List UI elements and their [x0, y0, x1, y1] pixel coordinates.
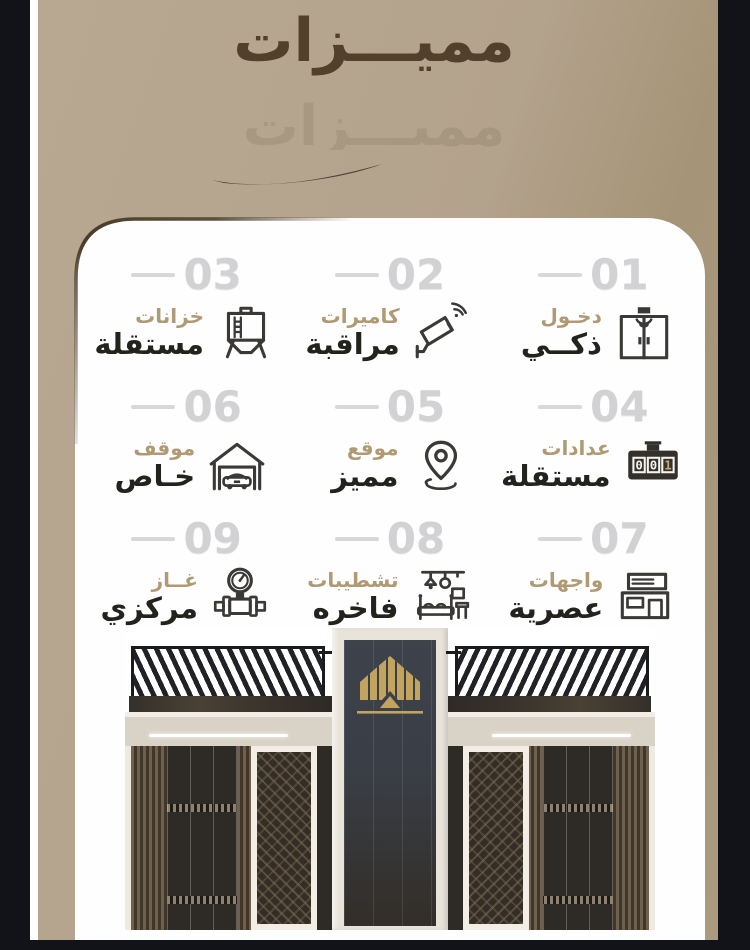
gas-meter-icon — [207, 564, 273, 630]
feature-number-row: 02 — [290, 252, 489, 298]
feature-number: 05 — [387, 386, 445, 428]
number-dash — [538, 537, 582, 541]
facade — [125, 746, 332, 930]
page-title-ghost: مميـــزات — [30, 94, 718, 150]
feature-item-location: 05 موقع مميز — [290, 384, 489, 502]
feature-number-row: 01 — [494, 252, 693, 298]
facade — [448, 746, 655, 930]
wood-slats — [131, 746, 167, 930]
feature-item-parking: 06 — [87, 384, 286, 502]
roof-railing — [446, 651, 461, 654]
feature-label-top: تشطيبات — [307, 569, 399, 592]
feature-window — [463, 746, 529, 930]
meter-digit: 0 — [635, 459, 642, 473]
feature-item-tanks: 03 — [87, 252, 286, 370]
feature-item-gas: 09 — [87, 516, 286, 634]
led-strip — [492, 734, 631, 737]
feature-number-row: 06 — [87, 384, 286, 430]
feature-label-bottom: مراقبة — [305, 329, 399, 361]
feature-label-top: واجهات — [508, 569, 603, 592]
number-dash — [131, 405, 175, 409]
feature-label-bottom: فاخره — [307, 593, 399, 625]
meter-digit: 1 — [664, 459, 671, 473]
feature-item-meters: 04 0 0 — [494, 384, 693, 502]
glass-curtain-wall — [167, 746, 237, 930]
feature-label-top: دخـول — [510, 305, 602, 328]
feature-number: 06 — [183, 386, 241, 428]
page-background: مميـــزات مميـــزات — [0, 0, 750, 950]
roof-pergola — [131, 646, 325, 699]
utility-meter-icon: 0 0 1 — [620, 432, 686, 498]
gold-house-logo-icon — [357, 652, 423, 716]
feature-label-top: عدادات — [501, 437, 611, 460]
glass-curtain-wall — [543, 746, 613, 930]
number-dash — [538, 273, 582, 277]
luxury-furniture-icon — [408, 564, 474, 630]
feature-number: 03 — [183, 254, 241, 296]
feature-number-row: 05 — [290, 384, 489, 430]
features-card: 01 — [75, 218, 705, 940]
wood-slats — [613, 746, 649, 930]
building-left-wing — [125, 646, 332, 930]
feature-item-smart-entry: 01 — [494, 252, 693, 370]
building-right-wing — [448, 646, 655, 930]
number-dash — [335, 537, 379, 541]
feature-label-top: موقع — [307, 437, 399, 460]
building-render — [125, 628, 655, 930]
feature-label-bottom: ذكــي — [510, 329, 602, 361]
feature-label-top: خزانات — [94, 305, 204, 328]
feature-number-row: 07 — [494, 516, 693, 562]
glass-curtain-wall — [448, 746, 463, 930]
number-dash — [131, 273, 175, 277]
feature-number: 01 — [590, 254, 648, 296]
smart-entry-icon — [611, 300, 677, 366]
garage-car-icon — [204, 432, 270, 498]
feature-label-bottom: مستقلة — [501, 461, 611, 493]
feature-number-row: 04 — [494, 384, 693, 430]
feature-number: 04 — [590, 386, 648, 428]
features-grid: 01 — [75, 218, 705, 634]
roof-pergola — [455, 646, 649, 699]
feature-number-row: 03 — [87, 252, 286, 298]
feature-label-top: موقف — [103, 437, 195, 460]
entrance-tower — [332, 628, 448, 930]
feature-window — [251, 746, 317, 930]
mullions — [167, 746, 237, 930]
feature-number: 09 — [183, 518, 241, 560]
wood-slats — [237, 746, 251, 930]
water-tank-icon — [213, 300, 279, 366]
feature-number: 07 — [590, 518, 648, 560]
number-dash — [538, 405, 582, 409]
feature-label-bottom: مستقلة — [94, 329, 204, 361]
wood-slats — [529, 746, 543, 930]
feature-item-finishes: 08 — [290, 516, 489, 634]
feature-label-bottom: عصرية — [508, 593, 603, 625]
feature-label-top: غــاز — [100, 569, 197, 592]
feature-label-top: كاميرات — [305, 305, 399, 328]
meter-digit: 0 — [649, 459, 656, 473]
glass-curtain-wall — [317, 746, 332, 930]
feature-number: 08 — [387, 518, 445, 560]
page-title: مميـــزات — [30, 6, 718, 76]
brush-swoosh-icon — [210, 158, 388, 196]
feature-number-row: 08 — [290, 516, 489, 562]
feature-label-bottom: مركزي — [100, 593, 197, 625]
feature-item-cctv: 02 — [290, 252, 489, 370]
number-dash — [335, 273, 379, 277]
number-dash — [335, 405, 379, 409]
mullions — [543, 746, 613, 930]
roof-terrace — [448, 696, 651, 712]
feature-number: 02 — [387, 254, 445, 296]
building-facade-icon — [612, 564, 678, 630]
led-strip — [149, 734, 288, 737]
number-dash — [131, 537, 175, 541]
corner-frame — [649, 746, 655, 930]
location-pin-icon — [408, 432, 474, 498]
flyer-canvas: مميـــزات مميـــزات — [30, 0, 718, 940]
feature-label-bottom: مميز — [307, 461, 399, 493]
feature-label-bottom: خـاص — [103, 461, 195, 493]
roof-terrace — [129, 696, 332, 712]
cctv-camera-icon — [409, 300, 475, 366]
feature-item-facades: 07 — [494, 516, 693, 634]
feature-number-row: 09 — [87, 516, 286, 562]
